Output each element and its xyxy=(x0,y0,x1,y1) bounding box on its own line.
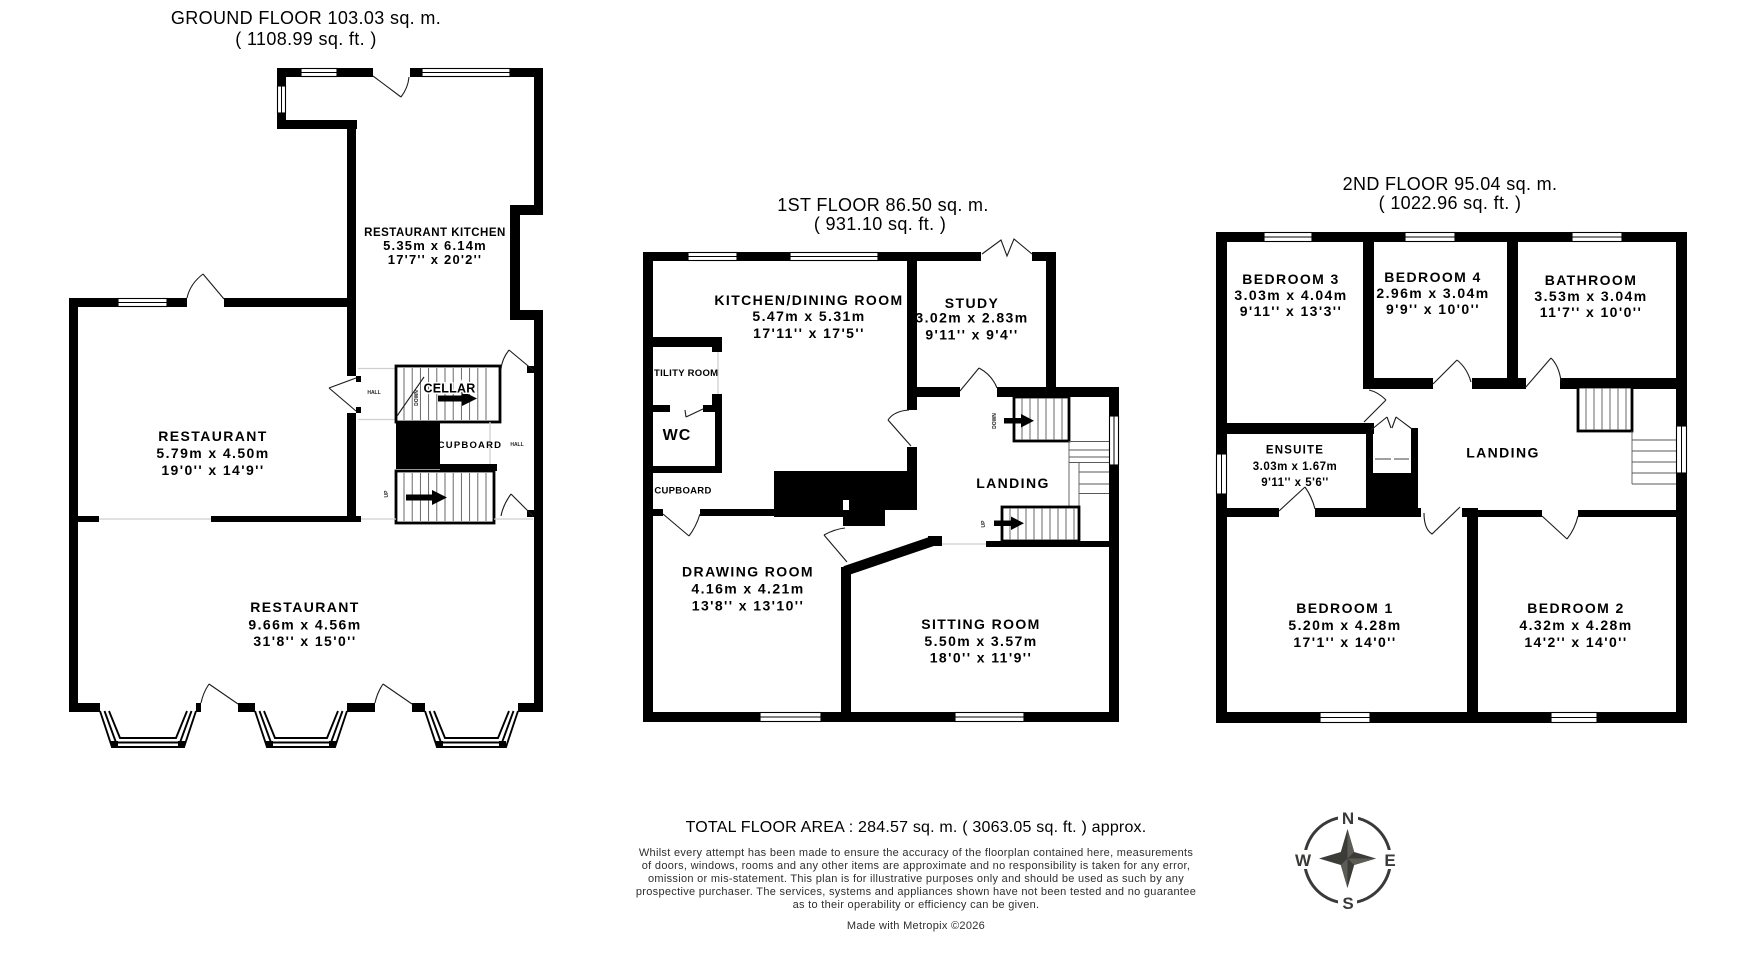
svg-text:UP: UP xyxy=(981,520,987,528)
svg-text:WC: WC xyxy=(663,427,692,444)
svg-text:omission or mis-statement. Thi: omission or mis-statement. This plan is … xyxy=(648,873,1184,885)
svg-text:CELLAR: CELLAR xyxy=(424,382,476,396)
svg-text:( 931.10 sq. ft. ): ( 931.10 sq. ft. ) xyxy=(814,214,946,234)
svg-text:BEDROOM 1: BEDROOM 1 xyxy=(1296,600,1393,616)
svg-text:9'11'' x 5'6'': 9'11'' x 5'6'' xyxy=(1261,477,1329,489)
svg-text:BEDROOM 3: BEDROOM 3 xyxy=(1242,271,1339,287)
svg-text:E: E xyxy=(1384,851,1395,870)
svg-text:5.50m x 3.57m: 5.50m x 3.57m xyxy=(924,633,1037,649)
svg-text:2ND FLOOR 95.04 sq. m.: 2ND FLOOR 95.04 sq. m. xyxy=(1343,174,1558,194)
svg-text:31'8'' x 15'0'': 31'8'' x 15'0'' xyxy=(253,633,356,649)
svg-text:LANDING: LANDING xyxy=(1466,445,1540,461)
svg-text:3.53m x 3.04m: 3.53m x 3.04m xyxy=(1534,288,1647,304)
svg-text:17'11'' x 17'5'': 17'11'' x 17'5'' xyxy=(753,325,865,341)
svg-text:17'1'' x 14'0'': 17'1'' x 14'0'' xyxy=(1293,634,1396,650)
svg-text:BEDROOM 2: BEDROOM 2 xyxy=(1527,600,1624,616)
svg-text:18'0'' x 11'9'': 18'0'' x 11'9'' xyxy=(930,650,1032,666)
svg-text:ENSUITE: ENSUITE xyxy=(1266,445,1324,457)
svg-text:9'11'' x 13'3'': 9'11'' x 13'3'' xyxy=(1240,303,1342,319)
svg-text:W: W xyxy=(1295,851,1312,870)
svg-text:N: N xyxy=(1342,809,1354,828)
svg-text:Made with Metropix ©2026: Made with Metropix ©2026 xyxy=(847,920,985,932)
svg-text:KITCHEN/DINING ROOM: KITCHEN/DINING ROOM xyxy=(714,292,903,308)
svg-text:9'9'' x 10'0'': 9'9'' x 10'0'' xyxy=(1386,301,1480,317)
svg-text:( 1108.99 sq. ft. ): ( 1108.99 sq. ft. ) xyxy=(235,29,376,49)
svg-text:17'7'' x 20'2'': 17'7'' x 20'2'' xyxy=(388,252,482,267)
svg-text:TOTAL FLOOR AREA : 284.57 sq.: TOTAL FLOOR AREA : 284.57 sq. m. ( 3063.… xyxy=(686,819,1147,836)
svg-text:1ST FLOOR 86.50 sq. m.: 1ST FLOOR 86.50 sq. m. xyxy=(777,195,988,215)
svg-text:19'0'' x 14'9'': 19'0'' x 14'9'' xyxy=(161,462,264,478)
svg-text:S: S xyxy=(1342,894,1353,913)
svg-text:4.16m x 4.21m: 4.16m x 4.21m xyxy=(691,581,804,597)
svg-text:5.20m x 4.28m: 5.20m x 4.28m xyxy=(1288,617,1401,633)
svg-text:SITTING ROOM: SITTING ROOM xyxy=(921,616,1040,632)
svg-text:DRAWING ROOM: DRAWING ROOM xyxy=(682,564,814,580)
svg-text:14'2'' x 14'0'': 14'2'' x 14'0'' xyxy=(1524,634,1627,650)
svg-text:RESTAURANT: RESTAURANT xyxy=(250,599,359,615)
svg-text:HALL: HALL xyxy=(367,390,380,396)
svg-text:4.32m x 4.28m: 4.32m x 4.28m xyxy=(1519,617,1632,633)
svg-text:LANDING: LANDING xyxy=(976,475,1050,491)
svg-text:CUPBOARD: CUPBOARD xyxy=(654,486,711,497)
svg-text:5.79m x 4.50m: 5.79m x 4.50m xyxy=(156,445,269,461)
svg-text:BEDROOM 4: BEDROOM 4 xyxy=(1384,269,1481,285)
svg-text:( 1022.96 sq. ft. ): ( 1022.96 sq. ft. ) xyxy=(1379,193,1522,213)
svg-text:5.47m x 5.31m: 5.47m x 5.31m xyxy=(752,308,865,324)
svg-text:DOWN: DOWN xyxy=(992,413,998,429)
svg-text:HALL: HALL xyxy=(510,442,523,448)
svg-text:prospective purchaser. The ser: prospective purchaser. The services, sys… xyxy=(636,886,1196,898)
svg-text:UP: UP xyxy=(384,490,390,498)
svg-text:BATHROOM: BATHROOM xyxy=(1545,272,1638,288)
svg-text:3.02m x 2.83m: 3.02m x 2.83m xyxy=(915,310,1028,326)
svg-text:of doors, windows, rooms and a: of doors, windows, rooms and any other i… xyxy=(642,860,1190,872)
svg-text:5.35m x 6.14m: 5.35m x 6.14m xyxy=(383,238,487,253)
svg-text:Whilst every attempt has been: Whilst every attempt has been made to en… xyxy=(639,847,1193,859)
svg-text:RESTAURANT: RESTAURANT xyxy=(158,428,267,444)
svg-text:13'8'' x 13'10'': 13'8'' x 13'10'' xyxy=(692,598,804,614)
svg-text:DOWN: DOWN xyxy=(414,390,420,406)
svg-text:3.03m x 1.67m: 3.03m x 1.67m xyxy=(1253,461,1338,473)
svg-text:GROUND FLOOR 103.03 sq. m.: GROUND FLOOR 103.03 sq. m. xyxy=(171,8,441,28)
svg-text:TILITY ROOM: TILITY ROOM xyxy=(654,368,718,379)
svg-text:as to their operability or eff: as to their operability or efficiency ca… xyxy=(793,899,1040,911)
svg-text:CUPBOARD: CUPBOARD xyxy=(438,440,503,451)
svg-text:3.03m x 4.04m: 3.03m x 4.04m xyxy=(1234,287,1347,303)
svg-text:9'11'' x 9'4'': 9'11'' x 9'4'' xyxy=(925,327,1018,343)
svg-text:9.66m x 4.56m: 9.66m x 4.56m xyxy=(248,617,361,633)
svg-text:2.96m x 3.04m: 2.96m x 3.04m xyxy=(1376,285,1489,301)
svg-text:11'7'' x 10'0'': 11'7'' x 10'0'' xyxy=(1540,304,1642,320)
